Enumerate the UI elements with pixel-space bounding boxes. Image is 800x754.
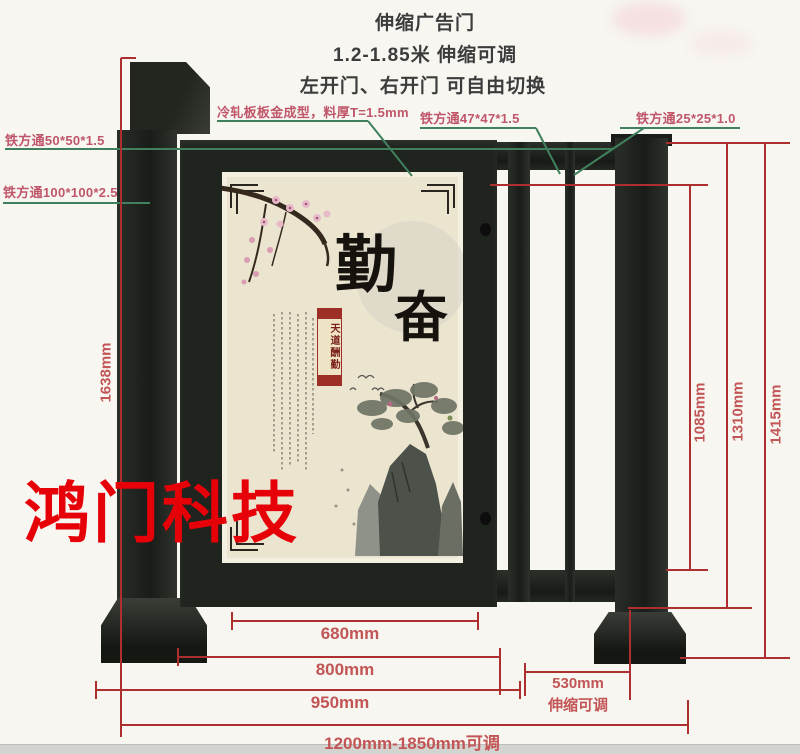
motor-housing-box [130,62,210,134]
calligraphy-char-fen: 奋 [394,290,448,344]
dim-opening-width: 950mm [311,693,370,713]
hinge-knob-upper [480,223,491,236]
artifact-smudge [612,2,686,36]
artifact-smudge [690,30,752,56]
label-tube100: 铁方通100*100*2.5 [3,182,118,201]
seal-banner-cap [318,309,341,319]
label-tube25: 铁方通25*25*1.0 [636,108,736,127]
watermark-text: 鸿门科技 [24,460,300,556]
right-post [615,138,668,622]
hinge-knob-lower [480,512,491,525]
page-title: 伸缩广告门 [375,8,475,35]
calligraphy-char-qin: 勤 [335,234,397,296]
slide-bar-25 [565,142,575,602]
seal-banner: 天道酬勤 [317,308,342,386]
dim-left-total-height: 1638mm [98,332,115,414]
product-diagram: 伸缩广告门 1.2-1.85米 伸缩可调 左开门、右开门 可自由切换 [0,0,800,754]
label-tube50: 铁方通50*50*1.5 [5,130,105,149]
door-direction-note: 左开门、右开门 可自由切换 [300,71,546,98]
left-post-base [101,598,207,663]
seal-banner-text: 天道酬勤 [318,321,341,373]
dim-right-mid-height: 1310mm [730,371,747,453]
dim-door-width: 800mm [316,660,375,680]
dim-panel-width: 680mm [321,624,380,644]
dim-right-inner-height: 1085mm [692,372,709,454]
dim-side-width: 530mm [552,675,604,692]
dim-side-note: 伸缩可调 [548,694,608,715]
size-range-note: 1.2-1.85米 伸缩可调 [333,40,517,67]
seal-banner-cap [318,375,341,385]
dim-right-outer-height: 1415mm [768,374,785,456]
right-post-base [594,612,686,664]
label-tube47: 铁方通47*47*1.5 [420,108,520,127]
dim-total-width: 1200mm-1850mm可调 [324,729,500,754]
slide-bar-47 [508,142,530,602]
label-cold-rolled: 冷轧板板金成型，料厚T=1.5mm [217,102,409,121]
